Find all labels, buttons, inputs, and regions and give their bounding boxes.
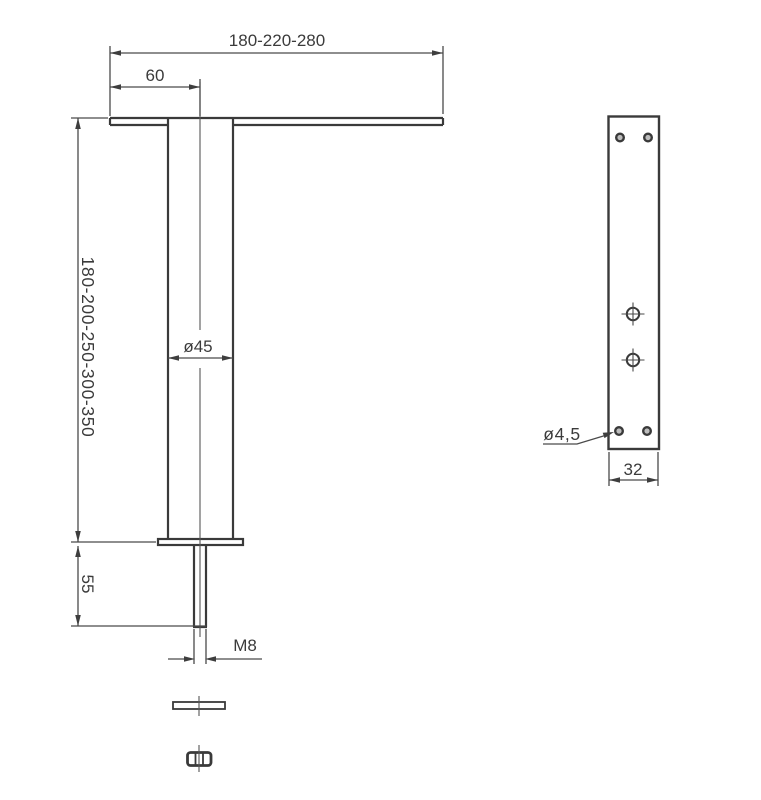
leg-drawing: 180-220-280 60 180-200-250-300-350 55	[0, 0, 761, 800]
dim-top-width-label: 180-220-280	[229, 31, 325, 50]
dim-hole-diameter-label: ø4,5	[543, 424, 580, 444]
dimension-plate-width: 32	[609, 452, 658, 486]
dim-offset-label: 60	[146, 66, 165, 85]
dim-stud-length-label: 55	[78, 575, 97, 594]
top-plate	[110, 118, 443, 125]
dimension-stud-length: 55	[71, 546, 206, 626]
center-mark-hole	[622, 303, 645, 326]
technical-drawing-page: 180-220-280 60 180-200-250-300-350 55	[0, 0, 761, 800]
center-mark-hole	[622, 349, 645, 372]
screw-hole	[616, 134, 624, 142]
dim-thread-label: M8	[233, 636, 257, 655]
screw-hole	[615, 427, 623, 435]
side-view: ø4,5 32	[543, 117, 659, 487]
screw-hole	[644, 134, 652, 142]
dimension-leg-height: 180-200-250-300-350	[71, 118, 156, 542]
leader-hole-diameter: ø4,5	[543, 424, 614, 444]
dimension-thread: M8	[168, 636, 262, 662]
washer	[173, 696, 225, 716]
dim-plate-width-label: 32	[624, 460, 643, 479]
hex-nut	[188, 745, 212, 772]
front-view: 180-220-280 60 180-200-250-300-350 55	[71, 31, 443, 772]
dimension-plate-offset: 60	[110, 66, 200, 116]
dim-diameter-label: ø45	[183, 337, 212, 356]
screw-hole	[643, 427, 651, 435]
mounting-plate-outline	[609, 117, 660, 450]
dimension-tube-diameter: ø45	[168, 337, 233, 361]
dim-height-label: 180-200-250-300-350	[78, 257, 98, 438]
